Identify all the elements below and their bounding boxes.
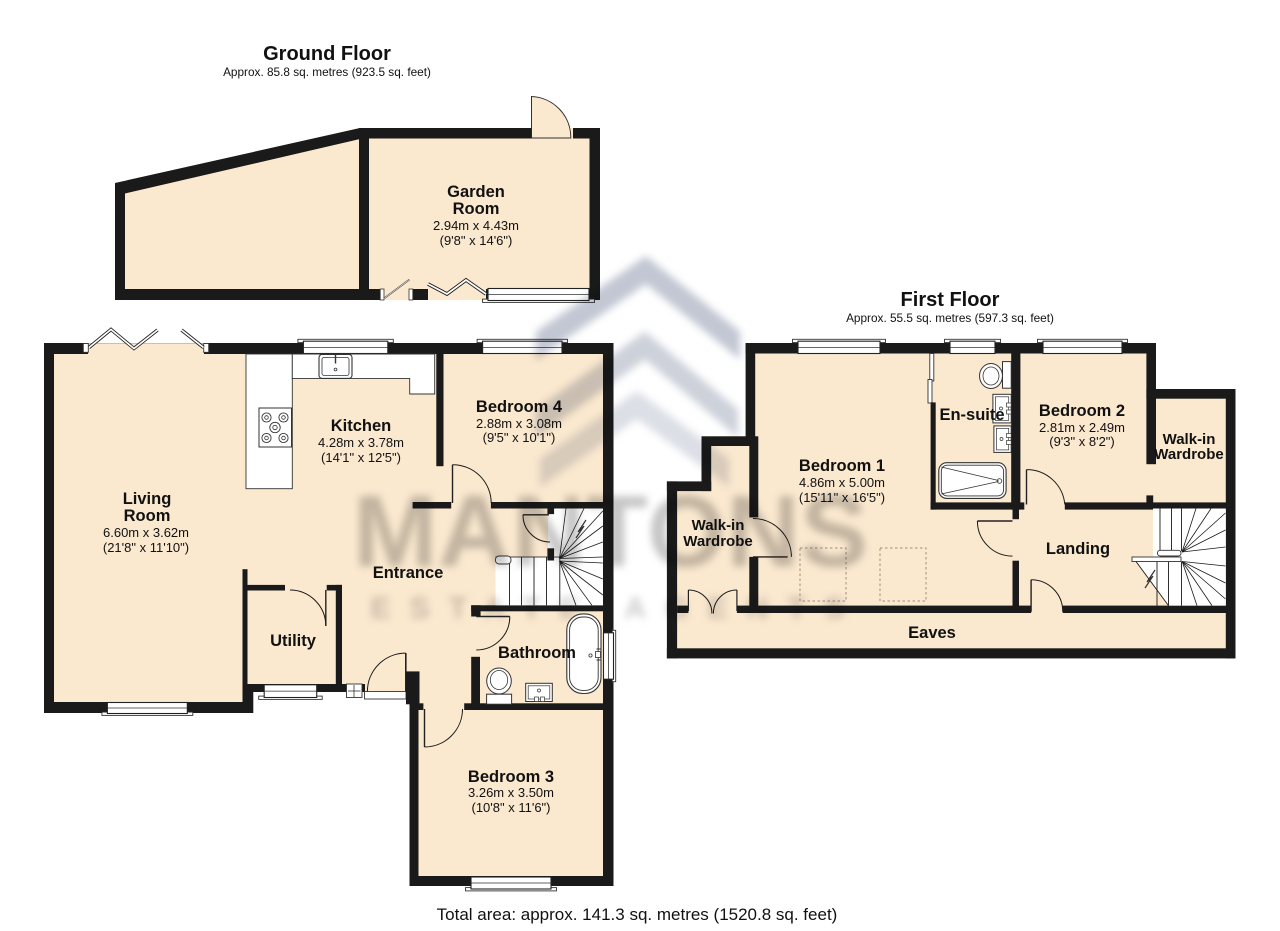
svg-text:ESTATE AGENTS: ESTATE AGENTS	[370, 592, 863, 625]
svg-text:MANTONS: MANTONS	[353, 476, 869, 588]
